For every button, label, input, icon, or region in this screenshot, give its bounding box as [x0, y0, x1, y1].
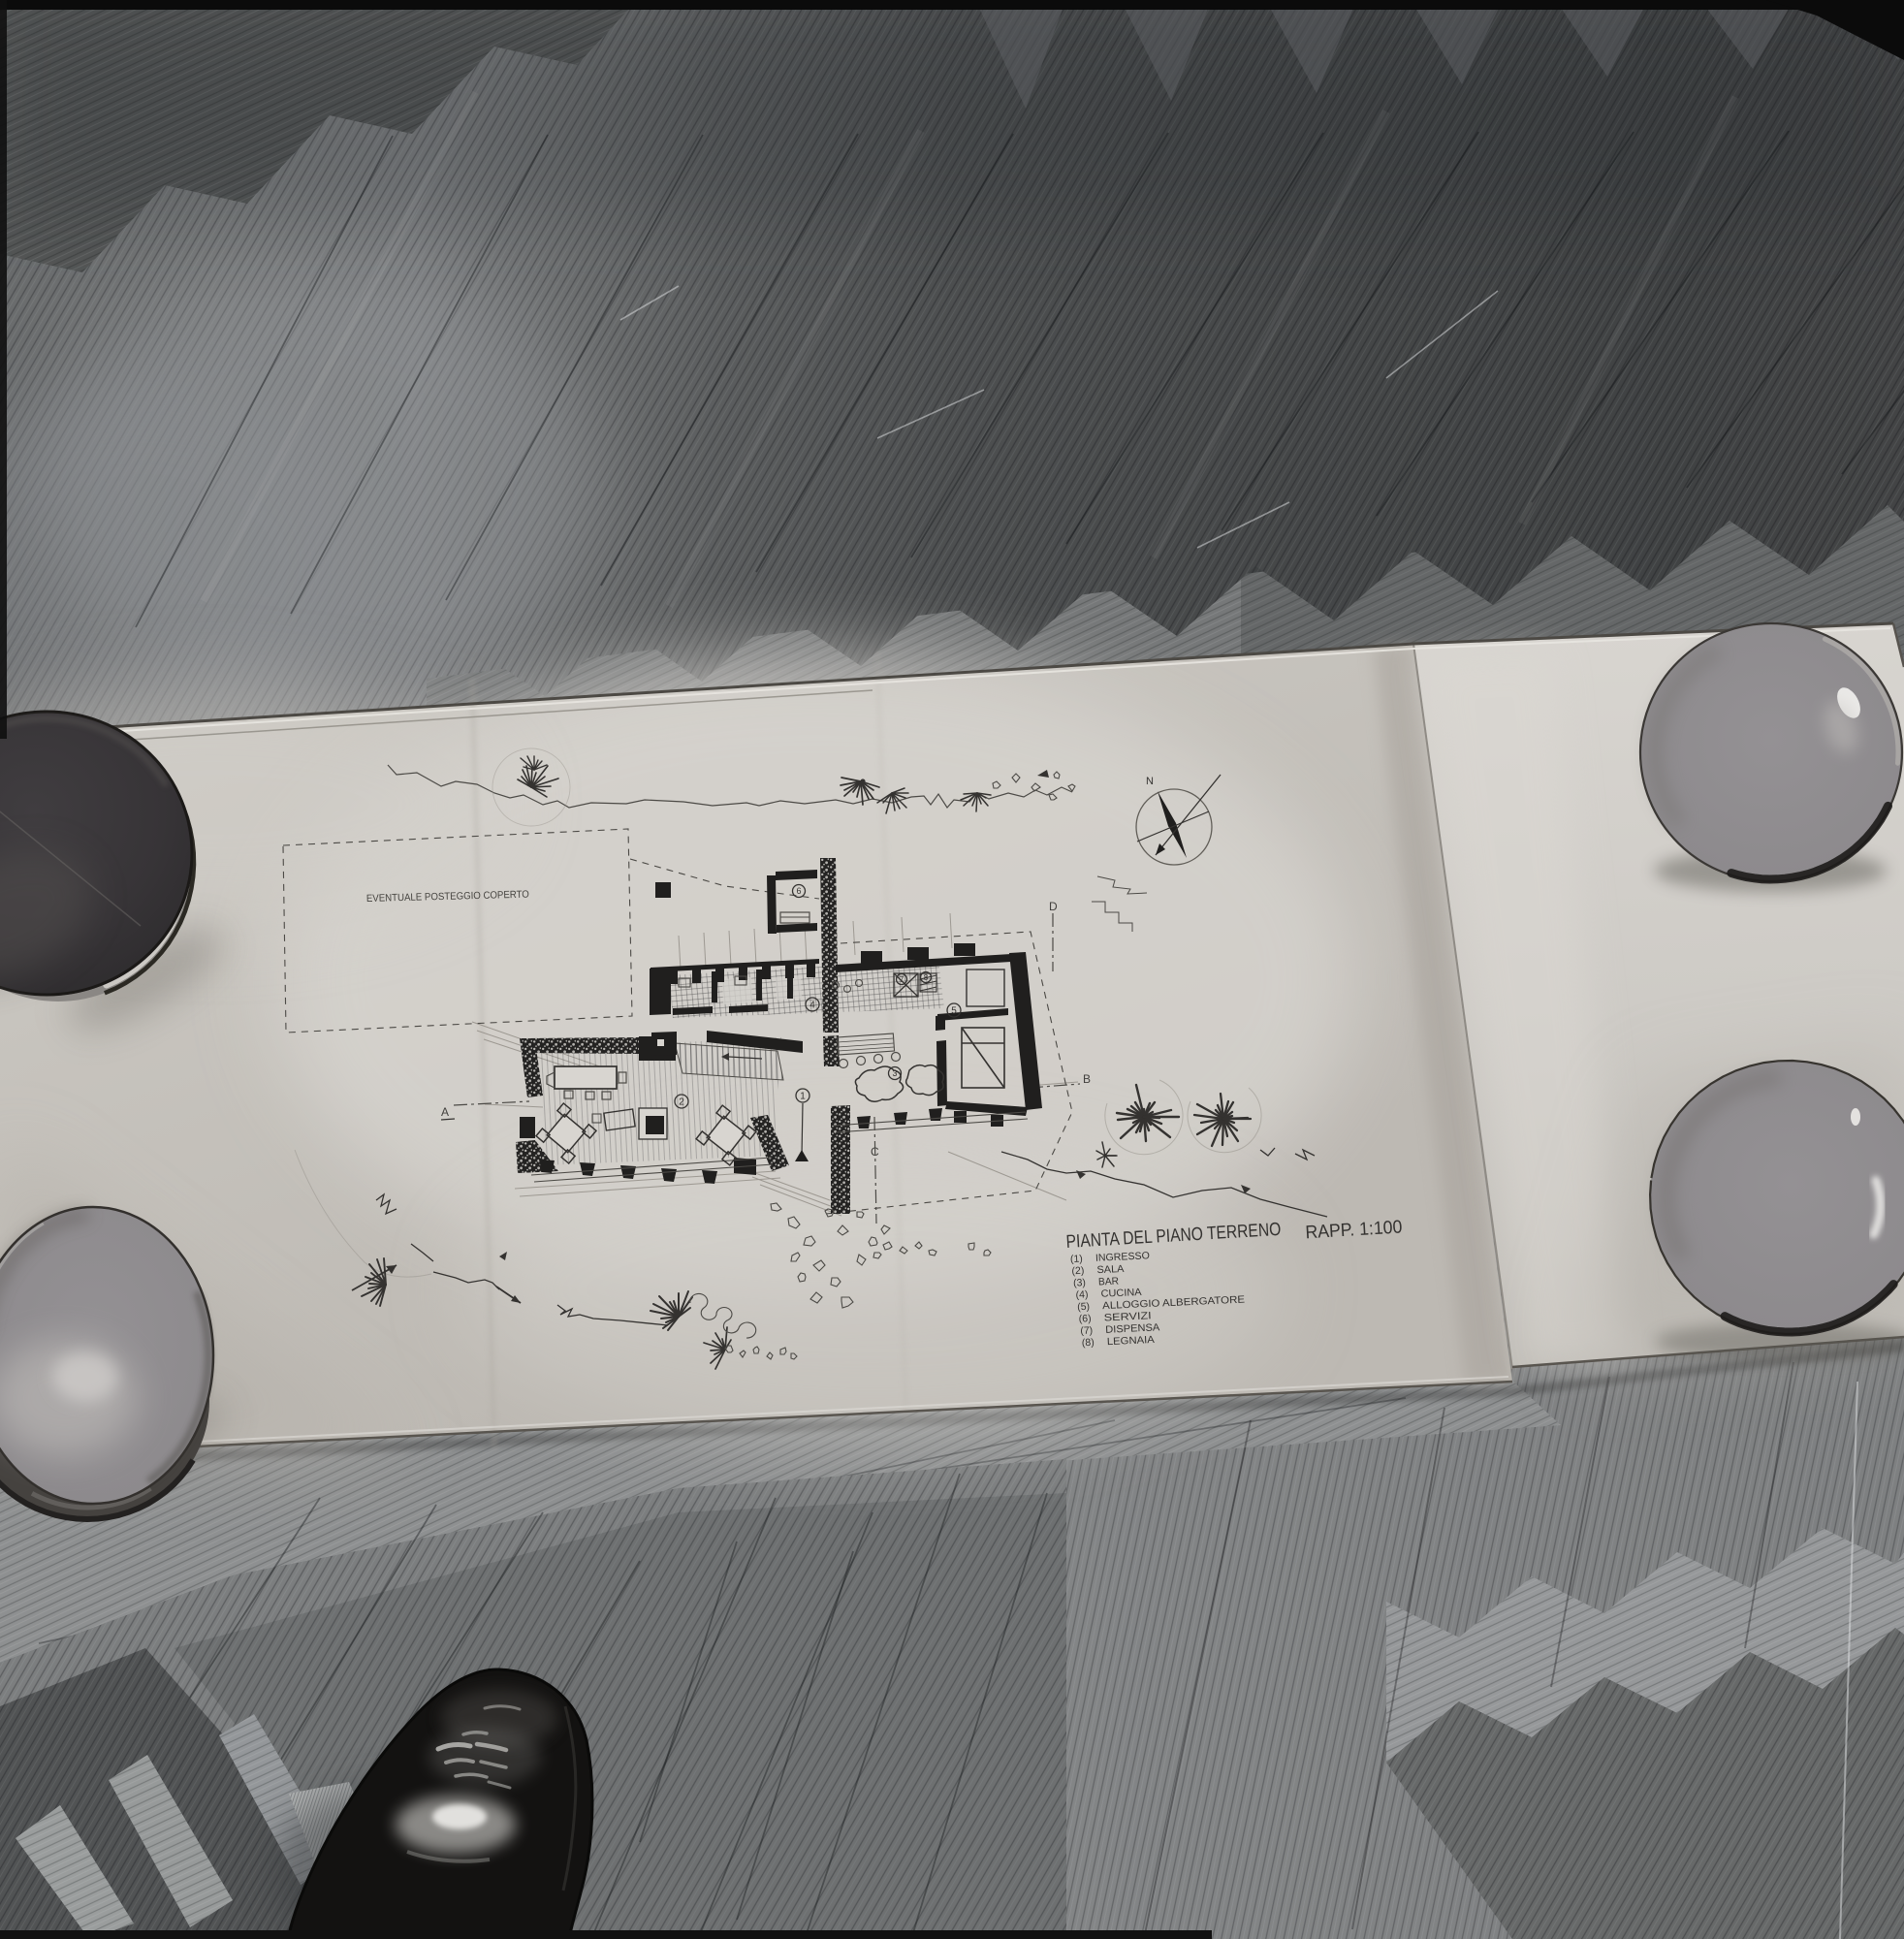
svg-text:D: D: [1049, 900, 1058, 913]
svg-text:7: 7: [900, 975, 904, 984]
svg-text:(7): (7): [1080, 1324, 1093, 1337]
svg-text:N: N: [1146, 776, 1154, 787]
svg-text:(4): (4): [1075, 1288, 1088, 1301]
svg-text:4: 4: [809, 1001, 815, 1011]
svg-text:3: 3: [892, 1068, 897, 1078]
svg-text:(6): (6): [1078, 1313, 1091, 1325]
svg-text:(3): (3): [1073, 1277, 1086, 1289]
svg-text:5: 5: [951, 1006, 957, 1017]
svg-text:2: 2: [679, 1097, 684, 1108]
svg-text:(1): (1): [1070, 1253, 1083, 1265]
svg-text:(2): (2): [1071, 1265, 1084, 1278]
svg-text:INGRESSO: INGRESSO: [1095, 1250, 1150, 1264]
svg-text:LEGNAIA: LEGNAIA: [1107, 1334, 1155, 1348]
svg-text:SALA: SALA: [1096, 1263, 1125, 1276]
svg-text:B: B: [1083, 1072, 1091, 1086]
svg-text:1: 1: [800, 1092, 806, 1102]
svg-text:8: 8: [924, 973, 929, 982]
svg-text:A: A: [441, 1105, 449, 1119]
svg-text:(8): (8): [1082, 1337, 1095, 1350]
svg-text:BAR: BAR: [1098, 1276, 1120, 1288]
svg-text:(5): (5): [1077, 1301, 1090, 1314]
svg-text:C: C: [871, 1145, 879, 1159]
svg-text:6: 6: [796, 886, 801, 896]
